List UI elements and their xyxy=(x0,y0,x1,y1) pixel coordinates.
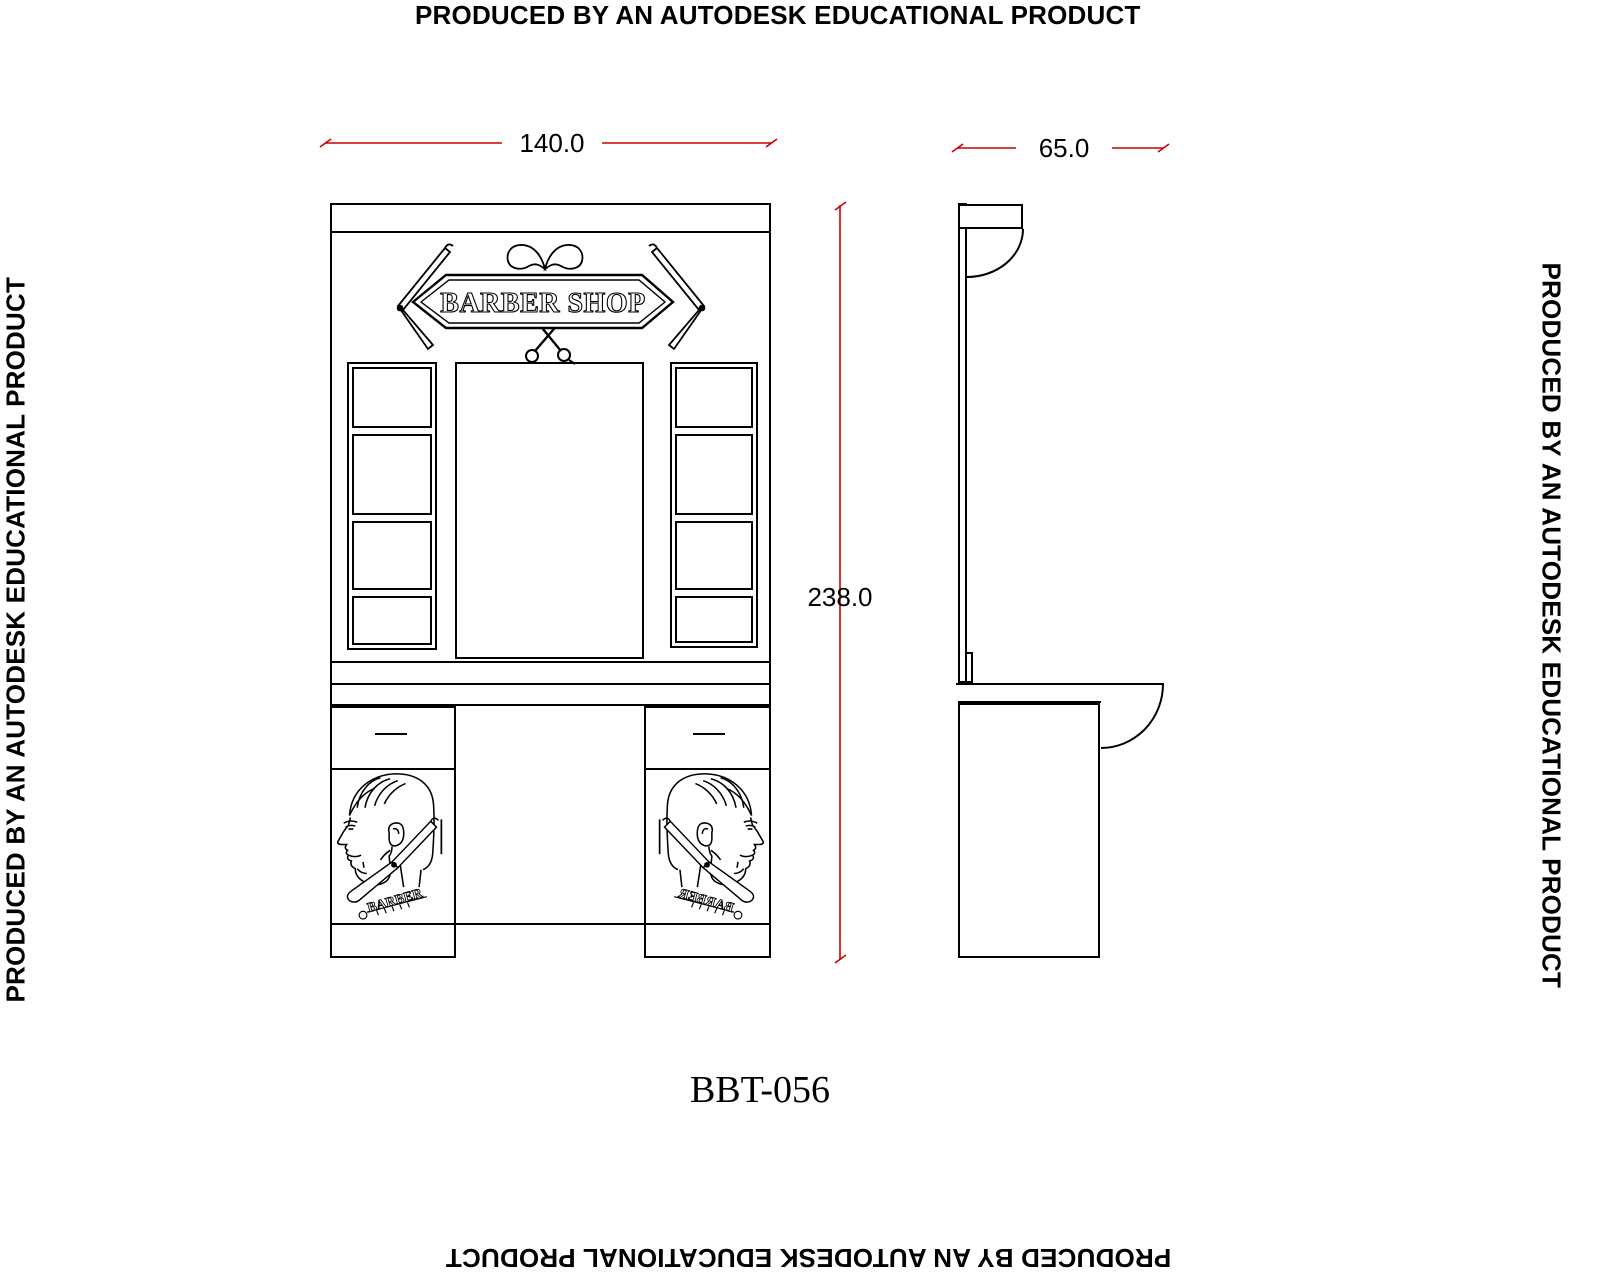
model-number-label: BBT-056 xyxy=(640,1068,880,1112)
dim-width-label: 140.0 xyxy=(502,129,602,157)
door-label: BARBER xyxy=(677,885,736,915)
door-label: BARBER xyxy=(365,885,424,915)
counter-edge-arc xyxy=(1101,684,1163,748)
sign-text: BARBER SHOP xyxy=(440,288,645,319)
barber-sign: BARBER SHOP xyxy=(385,233,720,368)
straight-razor-icon xyxy=(347,818,438,902)
crown-cove-arc xyxy=(967,229,1023,277)
dim-depth-label: 65.0 xyxy=(1016,134,1112,162)
side-profile-arcs xyxy=(967,229,1163,748)
straight-razor-icon xyxy=(663,818,754,902)
cad-drawing-canvas: PRODUCED BY AN AUTODESK EDUCATIONAL PROD… xyxy=(0,0,1600,1280)
door-graphic-left: BARBER xyxy=(334,765,452,925)
door-graphic-right: BARBER xyxy=(649,765,767,925)
dim-height-label: 238.0 xyxy=(792,583,888,611)
mustache-icon xyxy=(508,245,583,269)
